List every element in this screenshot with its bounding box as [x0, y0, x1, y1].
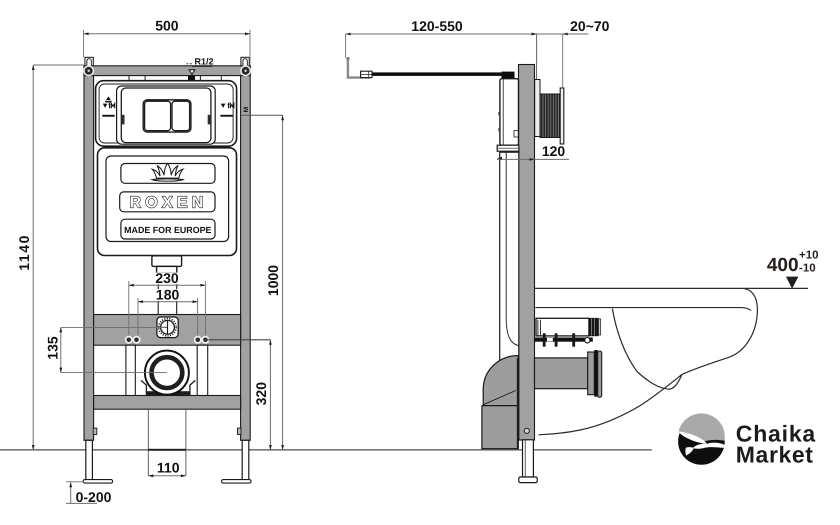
svg-text:180: 180 — [156, 286, 180, 302]
svg-text:135: 135 — [45, 336, 61, 360]
svg-text:R1/2: R1/2 — [194, 57, 213, 67]
svg-text:1140: 1140 — [16, 234, 32, 271]
svg-text:110: 110 — [157, 459, 180, 475]
svg-text:500: 500 — [155, 18, 179, 34]
svg-text:M: M — [243, 107, 250, 112]
svg-text:MADE FOR EUROPE: MADE FOR EUROPE — [124, 225, 211, 235]
svg-text:ROXEN: ROXEN — [130, 194, 208, 211]
svg-text:1000: 1000 — [265, 265, 281, 296]
svg-text:120-550: 120-550 — [411, 18, 463, 34]
svg-text:120: 120 — [542, 143, 566, 159]
svg-text:0-200: 0-200 — [76, 489, 112, 505]
svg-text:Market: Market — [736, 442, 814, 468]
svg-text:400: 400 — [767, 255, 799, 276]
svg-text:-10: -10 — [799, 262, 816, 274]
svg-text:+10: +10 — [799, 250, 819, 262]
svg-text:320: 320 — [253, 382, 269, 406]
svg-text:230: 230 — [155, 270, 179, 286]
svg-text:20~70: 20~70 — [570, 18, 610, 34]
